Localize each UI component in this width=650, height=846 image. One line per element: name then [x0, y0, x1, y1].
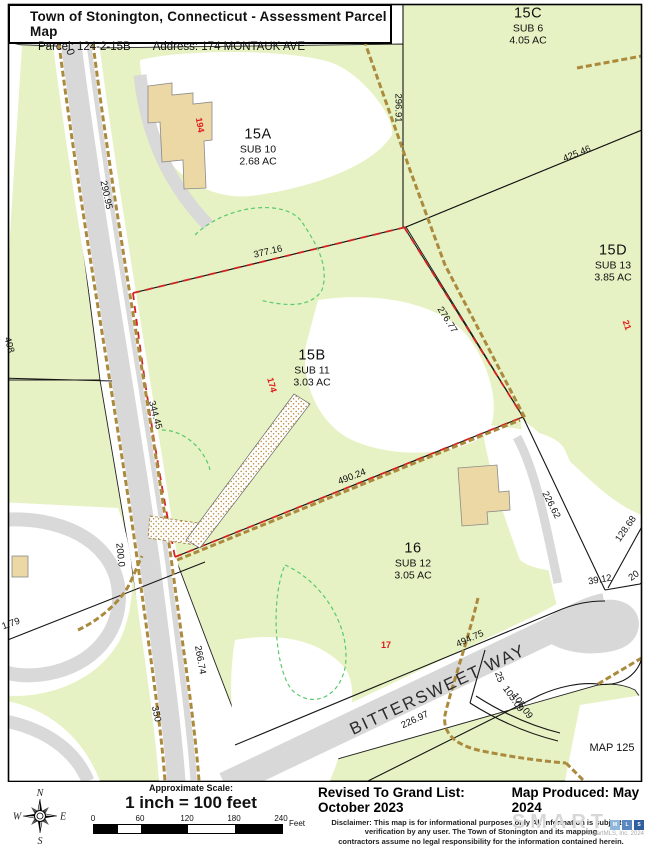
revised-date: Revised To Grand List: October 2023 — [318, 785, 512, 815]
parcel-id-text: Parcel: 124-2-15B — [38, 41, 131, 53]
logo-square-l: L — [622, 820, 632, 830]
map-subtitle: Parcel: 124-2-15BAddress: 174 MONTAUK AV… — [30, 41, 390, 53]
title-box: Town of Stonington, Connecticut - Assess… — [8, 4, 392, 44]
scale-tick: 60 — [136, 814, 145, 823]
compass-rose: N E S W — [10, 784, 70, 844]
scale-unit: Feet — [289, 819, 305, 828]
logo-square-s: S — [634, 820, 644, 830]
scale-tick: 180 — [227, 814, 240, 823]
map-title: Town of Stonington, Connecticut - Assess… — [30, 9, 390, 39]
scale-tick: 120 — [180, 814, 193, 823]
scale-heading: Approximate Scale: — [85, 783, 297, 793]
scale-ticks: 060120180240 — [85, 814, 297, 824]
compass-w-label: W — [13, 812, 23, 823]
logo-wordmark: SMART — [512, 814, 608, 830]
building-west — [12, 556, 28, 577]
footer: N E S W Approximate Scale: 1 inch = 100 … — [0, 782, 650, 845]
logo-square-m: M — [610, 820, 620, 830]
scale-tick: 0 — [91, 814, 95, 823]
scale-tick: 240 — [274, 814, 287, 823]
assessment-parcel-map-page: 290.95408344.45200.0266.743501.79377.162… — [0, 0, 650, 845]
scale-text: 1 inch = 100 feet — [85, 793, 297, 813]
address-text: Address: 174 MONTAUK AVE — [153, 41, 305, 53]
compass-s-label: S — [38, 836, 43, 844]
compass-e-label: E — [59, 812, 66, 823]
smartmls-logo: SMART M L S © SmartMLS, Inc. 2024 — [512, 814, 644, 837]
scale-block: Approximate Scale: 1 inch = 100 feet 060… — [85, 783, 297, 834]
scale-bar — [93, 824, 283, 834]
compass-n-label: N — [36, 788, 45, 799]
parcel-map-canvas — [0, 0, 650, 845]
